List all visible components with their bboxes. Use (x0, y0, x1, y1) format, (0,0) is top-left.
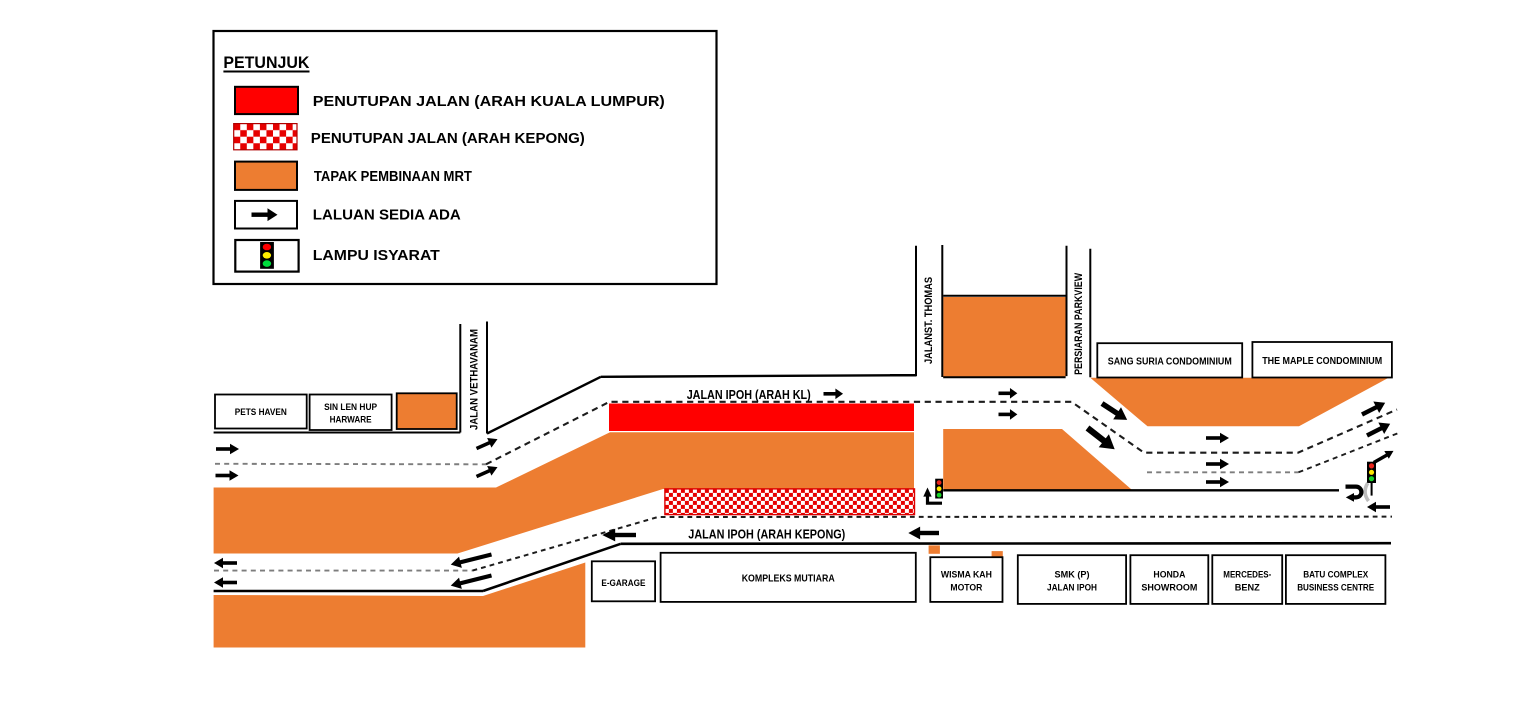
svg-text:JALAN VETHAVANAM: JALAN VETHAVANAM (469, 329, 481, 430)
svg-text:PENUTUPAN JALAN (ARAH KUALA LU: PENUTUPAN JALAN (ARAH KUALA LUMPUR) (313, 94, 665, 110)
svg-text:HONDA: HONDA (1153, 570, 1185, 581)
svg-text:JALAN IPOH (ARAH KEPONG): JALAN IPOH (ARAH KEPONG) (688, 527, 845, 542)
svg-text:BATU COMPLEX: BATU COMPLEX (1303, 570, 1369, 581)
svg-text:JALAN IPOH (ARAH KL): JALAN IPOH (ARAH KL) (687, 387, 811, 402)
svg-text:PERSIARAN PARKVIEW: PERSIARAN PARKVIEW (1073, 272, 1085, 374)
svg-text:MOTOR: MOTOR (950, 583, 982, 594)
svg-text:LAMPU ISYARAT: LAMPU ISYARAT (313, 248, 440, 264)
svg-text:JALANST. THOMAS: JALANST. THOMAS (923, 277, 935, 364)
svg-text:HARWARE: HARWARE (330, 415, 372, 426)
svg-text:MERCEDES-: MERCEDES- (1223, 570, 1271, 581)
svg-text:SIN LEN HUP: SIN LEN HUP (324, 402, 378, 413)
svg-text:JALAN IPOH: JALAN IPOH (1047, 583, 1097, 594)
svg-text:WISMA KAH: WISMA KAH (941, 570, 992, 581)
svg-text:E-GARAGE: E-GARAGE (601, 578, 645, 589)
svg-text:THE MAPLE CONDOMINIUM: THE MAPLE CONDOMINIUM (1262, 356, 1382, 367)
svg-text:PETS HAVEN: PETS HAVEN (235, 407, 287, 418)
svg-text:PETUNJUK: PETUNJUK (223, 53, 310, 72)
svg-text:BUSINESS CENTRE: BUSINESS CENTRE (1297, 583, 1374, 594)
svg-text:KOMPLEKS MUTIARA: KOMPLEKS MUTIARA (742, 573, 835, 585)
svg-text:SMK (P): SMK (P) (1055, 570, 1090, 581)
svg-text:LALUAN SEDIA ADA: LALUAN SEDIA ADA (313, 208, 462, 224)
svg-text:TAPAK PEMBINAAN MRT: TAPAK PEMBINAAN MRT (314, 169, 472, 185)
svg-text:SHOWROOM: SHOWROOM (1141, 583, 1197, 594)
svg-text:PENUTUPAN JALAN (ARAH KEPONG): PENUTUPAN JALAN (ARAH KEPONG) (311, 131, 585, 147)
svg-text:BENZ: BENZ (1235, 583, 1260, 594)
svg-text:SANG SURIA CONDOMINIUM: SANG SURIA CONDOMINIUM (1108, 357, 1232, 368)
